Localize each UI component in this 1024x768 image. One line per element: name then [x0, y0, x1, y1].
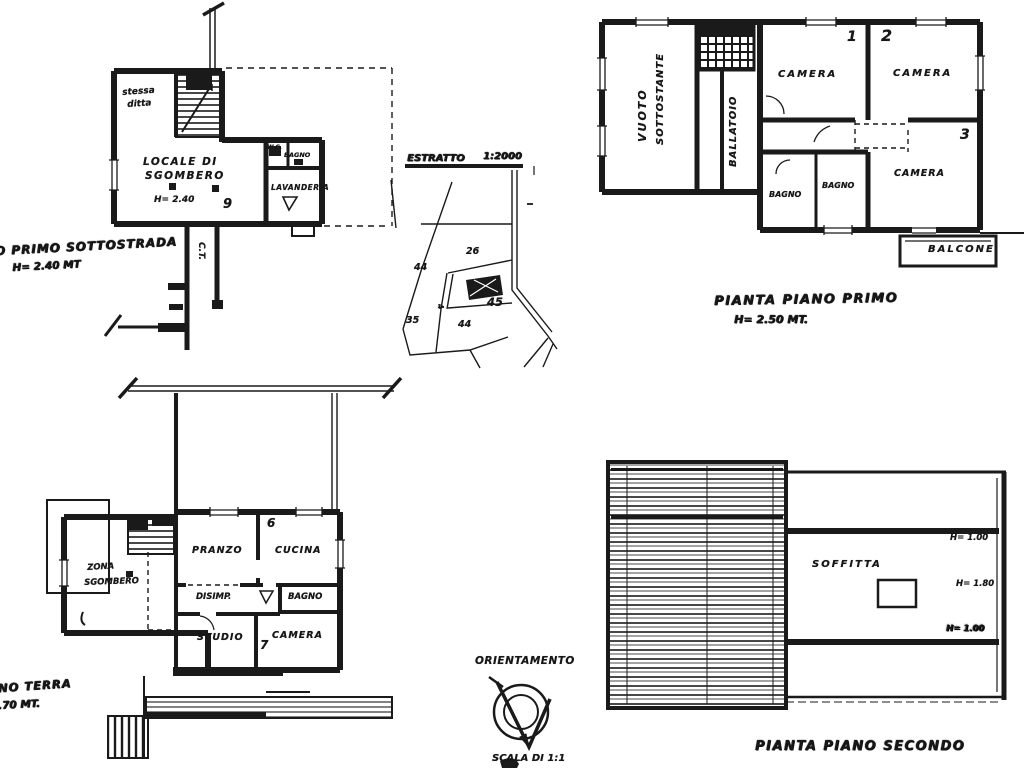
- room-number-6: 6: [267, 517, 275, 529]
- floorplan-sheet: PIANO PRIMO SOTTOSTRADA H= 2.40 MT stess…: [0, 0, 1024, 768]
- parcel-number-45: 45: [487, 297, 503, 309]
- room-label-zona-line2: SGOMBERO: [84, 577, 139, 587]
- room-label-lavanderia: LAVANDERIA: [271, 184, 329, 192]
- room-label-studio: STUDIO: [197, 633, 244, 643]
- compass-icon: [489, 677, 550, 747]
- site-map-title: ESTRATTO: [407, 154, 465, 164]
- room-label-camera-2: CAMERA: [893, 69, 952, 79]
- room-label-cucina: CUCINA: [275, 546, 322, 556]
- room-label-stessa-ditta-line2: ditta: [127, 99, 152, 110]
- room-label-bagno-1: BAGNO: [769, 191, 801, 199]
- room-number-1: 1: [847, 30, 857, 44]
- room-label-wc: W.C.: [267, 145, 282, 151]
- room-label-bagno-2: BAGNO: [822, 182, 854, 190]
- room-label-bagno-sottostrada: BAGNO: [284, 152, 310, 159]
- handwritten-number-9: 9: [223, 198, 232, 211]
- room-label-camera-terra: CAMERA: [272, 631, 323, 641]
- room-label-vuoto-line2: SOTTOSTANTE: [656, 53, 666, 145]
- room-label-zona-line1: ZONA: [87, 563, 115, 573]
- room-label-disimp: DISIMP.: [196, 593, 231, 602]
- room-label-bagno-terra: BAGNO: [288, 593, 322, 602]
- room-label-locale-line2: SGOMBERO: [145, 171, 225, 182]
- room-number-2: 2: [881, 28, 892, 44]
- room-label-camera-3: CAMERA: [894, 169, 945, 179]
- room-label-ct: C.T.: [196, 242, 205, 260]
- room-height-locale: H= 2.40: [154, 196, 194, 205]
- window-opening: [109, 160, 119, 190]
- room-label-soffitta: SOFFITTA: [812, 560, 882, 570]
- caption-secondo: PIANTA PIANO SECONDO: [755, 740, 965, 753]
- room-label-locale-line1: LOCALE DI: [143, 157, 218, 168]
- parcel-number-44-bottom: 44: [458, 320, 471, 330]
- room-number-7: 7: [260, 639, 268, 651]
- room-label-balcone: BALCONE: [928, 245, 995, 255]
- height-annotation-bottom: H= 1.00: [946, 625, 984, 634]
- parcel-number-35: 35: [406, 316, 419, 326]
- compass-title: ORIENTAMENTO: [475, 656, 575, 667]
- compass-scale-label: SCALA DI 1:1: [492, 754, 565, 764]
- caption-primo-line2: H= 2.50 MT.: [734, 314, 808, 325]
- caption-primo-line1: PIANTA PIANO PRIMO: [714, 292, 898, 308]
- height-annotation-top: H= 1.00: [950, 534, 988, 543]
- room-label-ballatoio: BALLATOIO: [729, 96, 739, 167]
- room-label-pranzo: PRANZO: [192, 546, 243, 556]
- plan-secondo-walls: [608, 462, 1006, 708]
- height-annotation-mid: H= 1.80: [956, 580, 994, 589]
- site-map-scale: 1:2000: [483, 152, 522, 162]
- room-label-vuoto-line1: VUOTO: [637, 88, 648, 142]
- parcel-number-26: 26: [466, 247, 479, 257]
- room-number-3: 3: [960, 128, 970, 142]
- plans-linework: [0, 0, 1024, 768]
- room-label-camera-1: CAMERA: [778, 70, 837, 80]
- parcel-number-44-left: 44: [414, 263, 427, 273]
